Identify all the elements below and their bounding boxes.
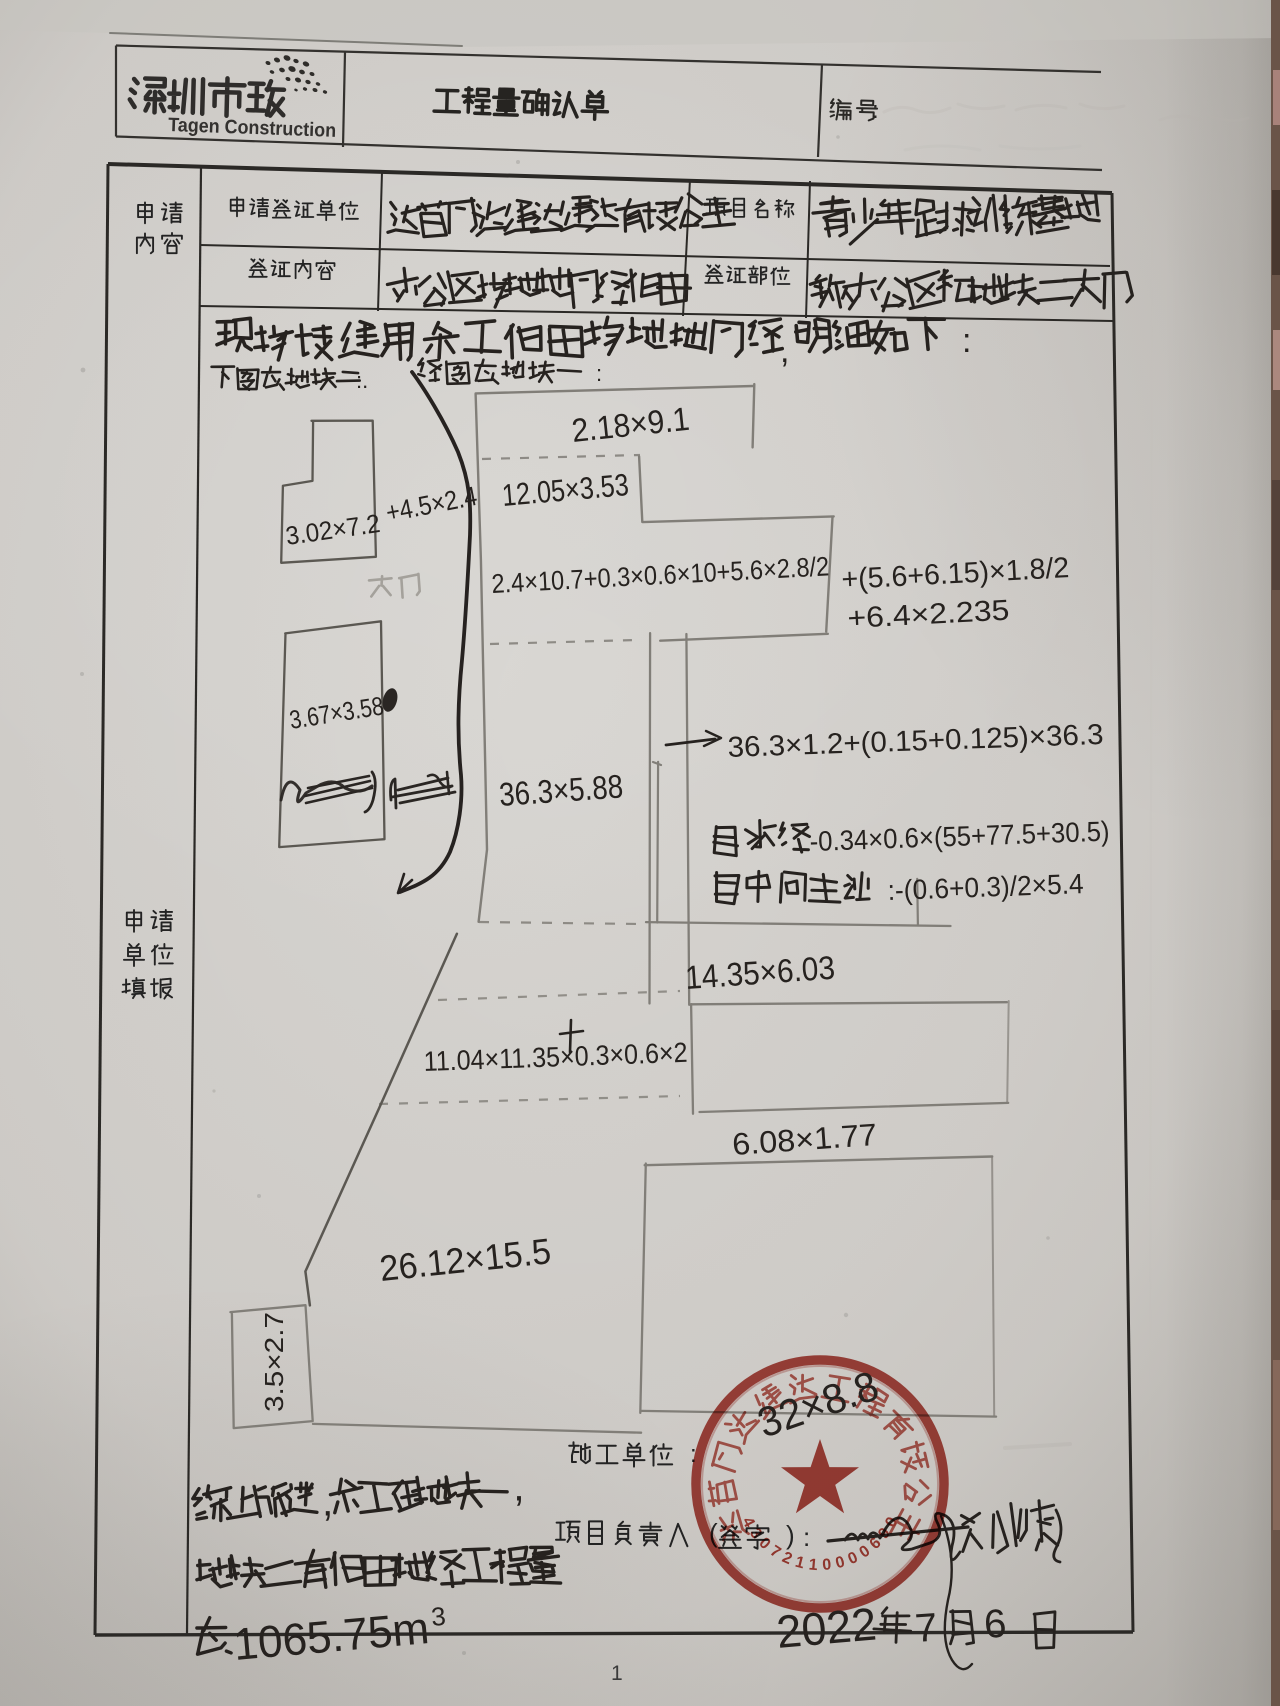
- svg-text:,: ,: [780, 332, 789, 370]
- svg-text:3.5×2.7: 3.5×2.7: [259, 1312, 289, 1412]
- svg-text:0: 0: [822, 1556, 832, 1574]
- svg-text:3: 3: [430, 1601, 447, 1632]
- svg-text:7: 7: [914, 1606, 939, 1651]
- svg-text:1: 1: [611, 1662, 623, 1685]
- svg-text::: :: [872, 97, 879, 124]
- svg-text:,: ,: [322, 1479, 333, 1525]
- svg-text:): ): [786, 1520, 795, 1550]
- svg-text:2022: 2022: [774, 1597, 878, 1658]
- svg-text::.: :.: [356, 368, 368, 393]
- svg-text::: :: [803, 1522, 810, 1552]
- svg-text:6: 6: [983, 1602, 1008, 1647]
- svg-text:,: ,: [513, 1464, 524, 1510]
- svg-text:1: 1: [808, 1556, 818, 1574]
- svg-text::: :: [962, 322, 971, 360]
- svg-text::: :: [596, 361, 602, 386]
